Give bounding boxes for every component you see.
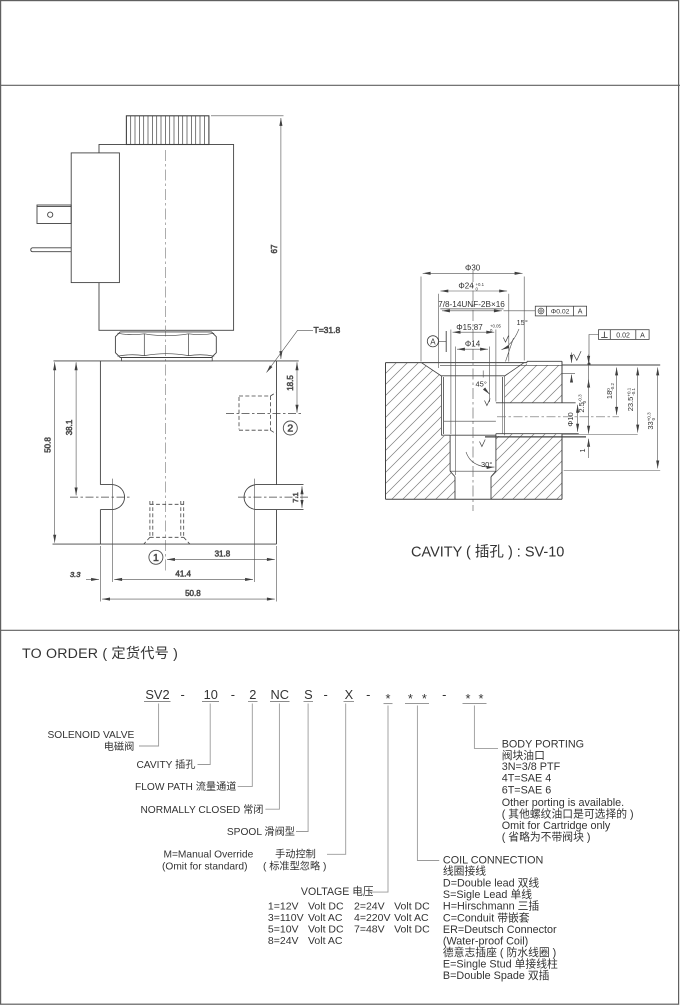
svg-text:Φ10: Φ10 — [566, 412, 575, 426]
svg-text:50.8: 50.8 — [44, 437, 53, 453]
svg-text:Volt DC: Volt DC — [394, 901, 430, 913]
svg-text:Volt DC: Volt DC — [308, 924, 344, 936]
svg-text:0.02: 0.02 — [616, 332, 630, 339]
svg-text:Volt DC: Volt DC — [308, 901, 344, 913]
svg-text:5=10V: 5=10V — [268, 924, 299, 936]
svg-text:SPOOL 滑阀型: SPOOL 滑阀型 — [227, 825, 295, 838]
svg-text:10: 10 — [204, 687, 218, 702]
svg-text:Φ24: Φ24 — [458, 281, 474, 290]
svg-text:4=220V: 4=220V — [354, 912, 391, 924]
svg-text:CAVITY ( 插孔 ) : SV-10: CAVITY ( 插孔 ) : SV-10 — [411, 544, 564, 561]
svg-text:(Water-proof Coil): (Water-proof Coil) — [443, 936, 528, 948]
svg-text:7.1: 7.1 — [291, 492, 300, 502]
svg-text:-: - — [180, 687, 184, 702]
svg-text:1: 1 — [153, 552, 159, 564]
svg-text:( 省略为不带阀块 ): ( 省略为不带阀块 ) — [502, 830, 591, 844]
svg-text:D=Double lead 双线: D=Double lead 双线 — [443, 876, 540, 890]
svg-text:15°: 15° — [517, 318, 528, 327]
svg-text:3=110V: 3=110V — [268, 912, 304, 924]
svg-text:( 其他螺纹油口是可选择的 ): ( 其他螺纹油口是可选择的 ) — [502, 807, 634, 821]
svg-text:23.5+0.1-0.1: 23.5+0.1-0.1 — [626, 387, 636, 411]
svg-text:18.5: 18.5 — [286, 375, 295, 391]
svg-text:180-0.2: 180-0.2 — [605, 382, 615, 399]
svg-text:7=48V: 7=48V — [354, 924, 385, 936]
svg-text:Φ30: Φ30 — [465, 263, 481, 272]
svg-text:A: A — [578, 309, 583, 316]
svg-text:ER=Deutsch Connector: ER=Deutsch Connector — [443, 924, 557, 936]
svg-text:1: 1 — [578, 448, 587, 452]
svg-text:A: A — [430, 337, 436, 346]
svg-text:CAVITY 插孔: CAVITY 插孔 — [136, 758, 195, 771]
svg-text:E=Single Stud 单接线柱: E=Single Stud 单接线柱 — [443, 957, 558, 971]
svg-text:Volt DC: Volt DC — [394, 924, 430, 936]
svg-text:Other porting is available.: Other porting is available. — [502, 797, 624, 809]
svg-text:T=31.8: T=31.8 — [314, 325, 341, 335]
svg-text:1=12V: 1=12V — [268, 901, 299, 913]
svg-text:67: 67 — [270, 244, 279, 253]
svg-text:50.8: 50.8 — [185, 589, 201, 598]
svg-text:-: - — [323, 687, 327, 702]
svg-text:2.5-0.30: 2.5-0.30 — [577, 394, 587, 413]
svg-text:H=Hirschmann 三插: H=Hirschmann 三插 — [443, 899, 539, 913]
svg-text:Omit for Cartridge only: Omit for Cartridge only — [502, 820, 611, 832]
svg-text:( 标准型忽略 ): ( 标准型忽略 ) — [263, 860, 326, 873]
svg-text:31.8: 31.8 — [215, 550, 231, 559]
svg-text:SV2: SV2 — [145, 687, 169, 702]
svg-text:C=Conduit 带嵌套: C=Conduit 带嵌套 — [443, 912, 530, 925]
svg-text:-: - — [442, 687, 446, 702]
svg-text:41.4: 41.4 — [175, 569, 191, 578]
svg-text:NC: NC — [271, 687, 289, 702]
svg-text:Φ0.02: Φ0.02 — [551, 309, 570, 316]
svg-text:Φ14: Φ14 — [465, 340, 481, 349]
svg-text:X: X — [345, 687, 354, 702]
svg-text:2: 2 — [287, 423, 293, 435]
svg-text:电磁阀: 电磁阀 — [104, 740, 135, 753]
svg-text:阀块油口: 阀块油口 — [502, 748, 545, 762]
svg-text:4T=SAE 4: 4T=SAE 4 — [502, 773, 552, 785]
svg-text:Φ15.87: Φ15.87 — [456, 323, 483, 332]
svg-text:VOLTAGE 电压: VOLTAGE 电压 — [301, 885, 374, 898]
svg-text:33+0.30: 33+0.30 — [646, 412, 656, 430]
svg-text:FLOW PATH 流量通道: FLOW PATH 流量通道 — [135, 780, 237, 793]
svg-text:Volt AC: Volt AC — [394, 912, 429, 924]
svg-text:手动控制: 手动控制 — [275, 848, 316, 861]
svg-text:3N=3/8 PTF: 3N=3/8 PTF — [502, 761, 561, 773]
svg-text:7/8-14UNF-2B×16: 7/8-14UNF-2B×16 — [438, 300, 505, 309]
svg-text:线圈接线: 线圈接线 — [443, 864, 486, 878]
svg-text:NORMALLY CLOSED 常闭: NORMALLY CLOSED 常闭 — [140, 803, 263, 816]
svg-text:M=Manual Override: M=Manual Override — [164, 850, 254, 861]
svg-text:-: - — [231, 687, 235, 702]
svg-text:(Omit for standard): (Omit for standard) — [162, 862, 248, 873]
svg-text:德意志插座 ( 防水线圈 ): 德意志插座 ( 防水线圈 ) — [443, 945, 556, 959]
svg-text:2: 2 — [249, 687, 256, 702]
svg-text:BODY PORTING: BODY PORTING — [502, 739, 584, 751]
svg-text:S: S — [304, 687, 313, 702]
svg-text:6T=SAE 6: 6T=SAE 6 — [502, 785, 552, 797]
svg-text:2=24V: 2=24V — [354, 901, 385, 913]
svg-text:B=Double Spade 双插: B=Double Spade 双插 — [443, 968, 550, 982]
svg-text:38.1: 38.1 — [65, 419, 74, 435]
svg-text:Volt AC: Volt AC — [308, 912, 343, 924]
svg-text:-: - — [366, 687, 370, 702]
svg-text:45°: 45° — [476, 380, 487, 389]
svg-text:3.3: 3.3 — [70, 570, 81, 579]
svg-text:30°: 30° — [481, 460, 492, 469]
svg-text:8=24V: 8=24V — [268, 935, 299, 947]
svg-text:Volt AC: Volt AC — [308, 935, 343, 947]
svg-text:S=Sigle Lead 单线: S=Sigle Lead 单线 — [443, 887, 532, 901]
svg-text:SOLENOID VALVE: SOLENOID VALVE — [47, 730, 134, 741]
svg-text:A: A — [640, 332, 645, 339]
svg-text:TO ORDER ( 定货代号 ): TO ORDER ( 定货代号 ) — [22, 646, 178, 662]
